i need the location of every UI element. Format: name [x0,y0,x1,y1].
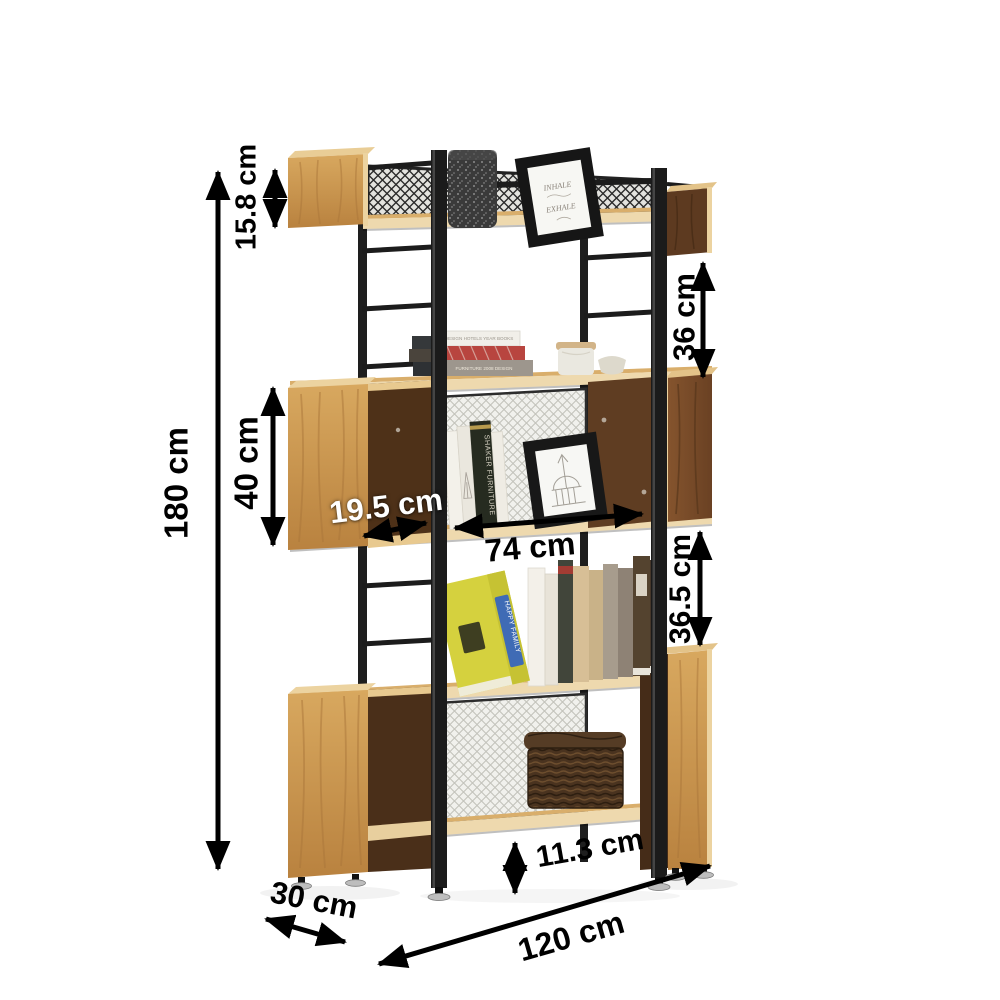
wicker-basket [524,732,626,808]
top-left-box [288,147,375,228]
book-stack: DESIGN HOTELS YEAR BOOKS FURNITURE 2008 … [436,331,533,376]
bottom-left-box [288,683,440,878]
dim-arrow-depth [266,919,345,942]
top-shelf-items: INHALE EXHALE [448,147,604,248]
fourth-shelf-items: HAPPY FAMILY [434,556,667,697]
inhale-exhale-frame: INHALE EXHALE [515,147,604,248]
dim-label-top-box-height: 15.8 cm [233,144,262,250]
top-right-box [666,182,717,256]
yellow-book: HAPPY FAMILY [434,570,530,696]
foot [346,874,366,886]
book-row [528,556,667,686]
dim-label-inner-width: 74 cm [483,527,576,567]
dimension-diagram: INHALE EXHALE DESIGN HOTELS YEAR BOOKS F… [0,0,1000,1000]
standing-books: SHAKER FURNITURE [443,420,509,530]
dim-label-lower-gap: 36.5 cm [666,534,696,644]
dome-picture-frame [523,432,609,529]
small-bowl [598,356,626,375]
ceramic-pot [556,342,596,375]
dim-label-upper-gap: 36 cm [669,273,700,361]
gray-book-title: FURNITURE 2008 DESIGN [456,366,513,371]
top-mesh-band [368,166,652,216]
bookshelf-illustration: INHALE EXHALE DESIGN HOTELS YEAR BOOKS F… [0,0,1000,1000]
white-book-title: DESIGN HOTELS YEAR BOOKS [445,336,514,341]
bottom-left-box-interior [368,686,440,872]
dim-label-middle-box-height: 40 cm [230,416,263,510]
dim-label-total-height: 180 cm [160,427,193,539]
fabric-roll [448,150,497,228]
